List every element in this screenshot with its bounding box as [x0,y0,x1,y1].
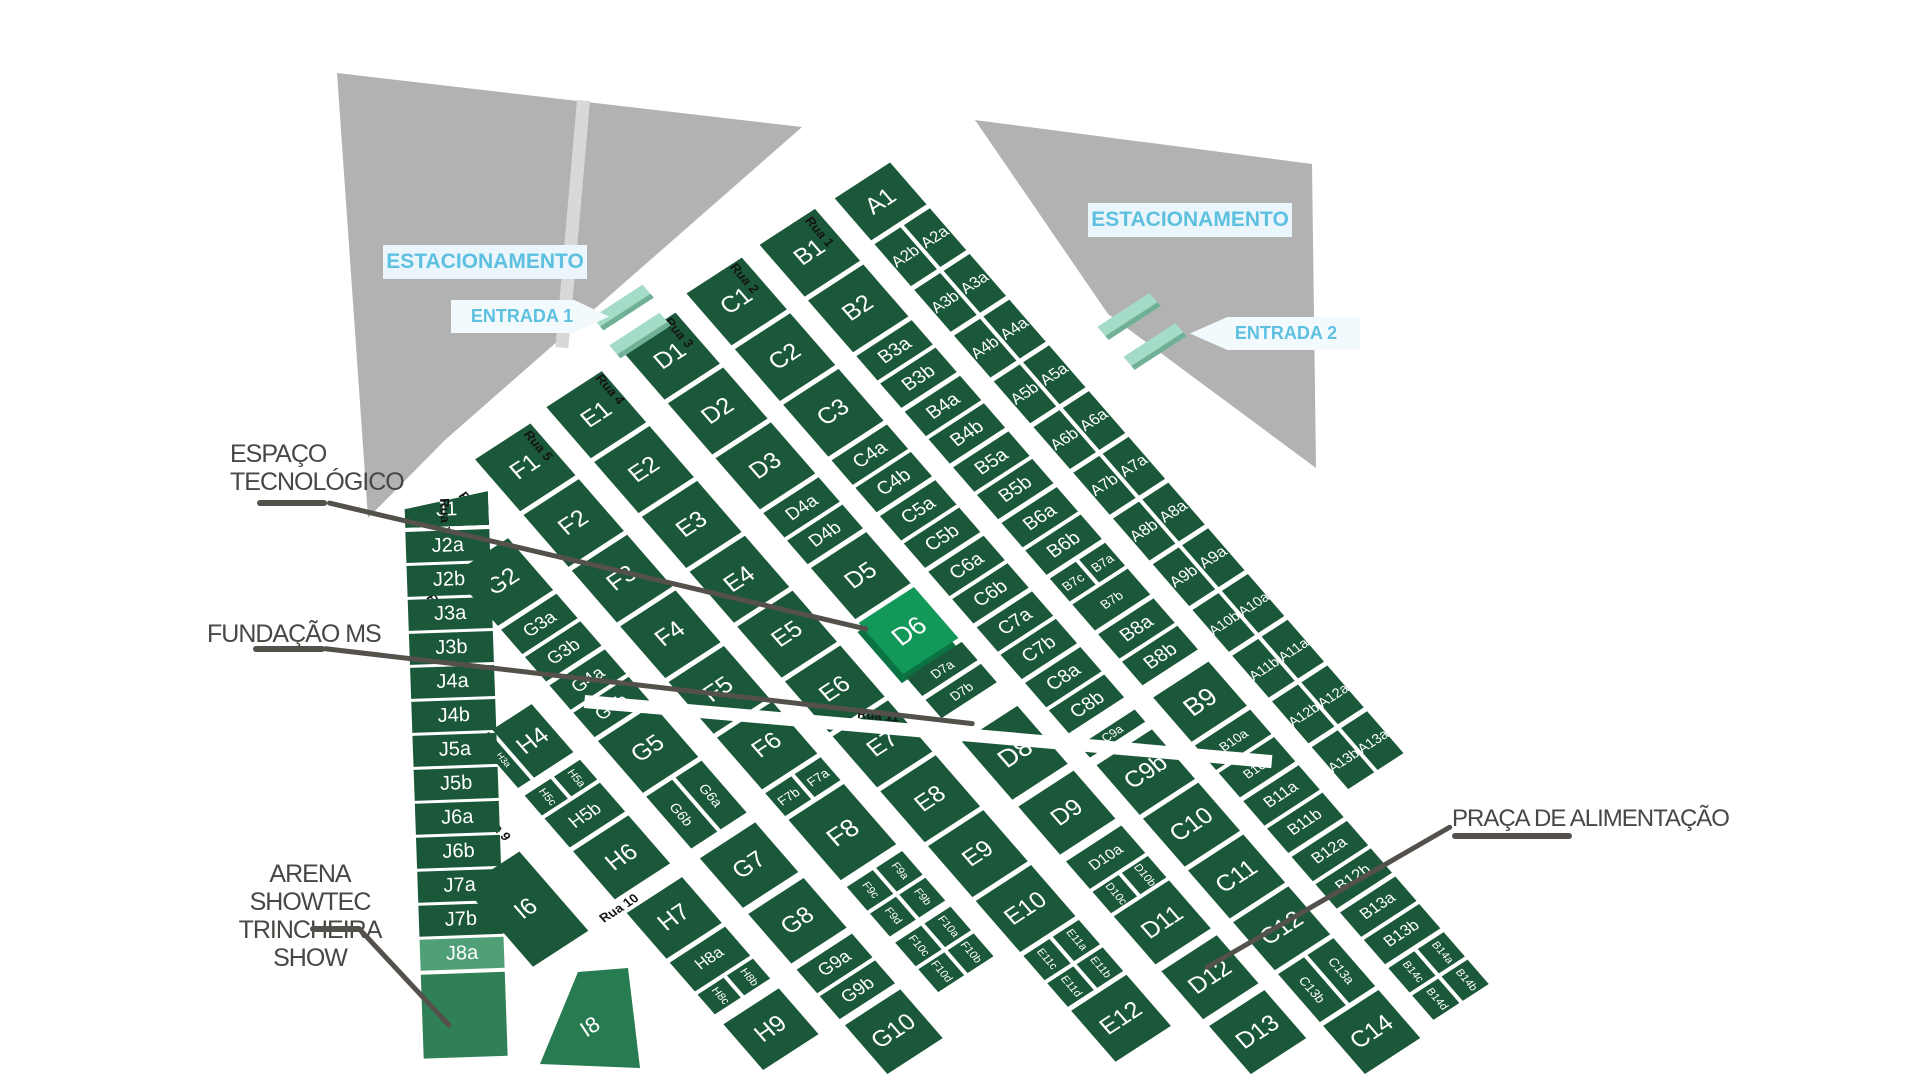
lot-label: I6 [510,895,543,924]
praca-underline [1452,833,1572,839]
lot-j6b[interactable]: J6b [416,835,501,869]
lot-label: D4a [782,491,822,523]
lot-label: D10b [1131,862,1158,888]
lot-label: E11d [1058,974,1084,999]
lot-label: G9a [814,947,854,979]
lot-label: D10a [1086,842,1126,873]
lot-label: H5a [564,767,587,788]
lot-label: B9 [1178,683,1222,720]
lot-label: H9 [750,1012,792,1047]
lot-label: C8a [1042,660,1084,693]
lot-label: F10c [906,933,931,958]
lot-label: A10a [1235,589,1272,617]
lot-label: H5b [565,799,605,831]
lot-label: B5a [971,445,1012,478]
lot-label: A9b [1167,563,1201,591]
lot-label: E4 [719,562,760,596]
lot-label: E1 [576,398,617,432]
lot-label: C4b [873,465,915,498]
lot-label: F4 [651,617,690,651]
lot-label: E6 [815,672,856,706]
lot-label: C6a [946,549,988,582]
lot-label: A8b [1127,517,1161,545]
lot-label: F9d [882,906,904,926]
lot-label: A7a [1117,452,1151,480]
lot-label: B12a [1309,835,1351,868]
lot-label: B5b [995,473,1036,506]
lot-label: A3a [958,269,992,297]
lot-label: D11 [1137,902,1188,943]
lot-label: H7 [653,900,695,935]
lot-label: A7b [1087,471,1121,499]
lot-label: B3b [898,361,939,394]
lot-label: A11a [1275,635,1311,663]
espaco-tecnologico-label: ESPAÇO TECNOLÓGICO [230,440,404,496]
lot-label: F7b [775,785,802,807]
lot-label: A2b [888,243,922,271]
praca-alimentacao-label: PRAÇA DE ALIMENTAÇÃO [1452,806,1729,833]
lot-label: E9 [958,837,999,871]
lot-j6a[interactable]: J6a [415,801,500,835]
lot-label: B2 [838,291,879,325]
lot-label: D3 [745,448,787,483]
lot-i8[interactable]: I8 [540,968,640,1068]
lot-label: D10c [1102,881,1128,907]
lot-h9[interactable]: H9 [723,988,818,1070]
lot-label: D13 [1231,1011,1284,1053]
lot-label: G8 [776,903,819,939]
showtec-event-map: A1A2bA2aA3bA3aA4bA4aA5bA5aA6bA6aA7bA7aA8… [0,0,1920,1080]
lot-label: B3a [874,334,915,367]
lot-label: D6 [886,611,931,649]
lot-j2a[interactable]: J2a [405,529,490,563]
lot-label: A4a [997,315,1031,343]
lot-label: G5 [627,731,670,767]
lot-label: B11b [1285,807,1326,839]
lot-label: F10a [935,914,961,939]
lot-label: C13a [1326,955,1357,986]
lot-label: E5 [767,617,808,651]
lot-label: D2 [697,393,739,428]
lot-label: B4a [923,390,964,423]
lot-label: C14 [1345,1011,1398,1053]
lot-label: C7b [1018,632,1060,665]
lot-label: C10 [1165,804,1218,846]
lot-label: D4b [805,518,845,550]
lot-label: B7b [1097,588,1125,611]
lot-label: C2 [764,340,806,375]
lot-j3a[interactable]: J3a [408,597,493,631]
lot-label: E2 [624,452,665,486]
lot-label: E11a [1063,928,1089,953]
lot-label: A5b [1008,380,1042,408]
lot-label: B14a [1428,940,1454,966]
lot-label: B6a [1019,501,1060,534]
lot-label: B11a [1261,779,1302,811]
lot-label: A13b [1325,745,1362,773]
lot-label: G9b [837,973,877,1005]
lot-j2b[interactable]: J2b [407,563,492,597]
lot-label: B14d [1423,986,1449,1012]
lot-label: A10b [1205,608,1242,636]
lot-label: B14c [1399,959,1425,984]
lot-label: C5b [921,521,963,554]
arena-underline [310,926,362,932]
lot-label: F6 [747,729,786,763]
lot-label: F8 [821,814,864,850]
lot-label: F10d [928,960,954,985]
lot-label: E8 [910,782,951,816]
lot-label: F9a [888,861,910,881]
lot-label: A8a [1156,498,1190,526]
lot-label: H8b [737,966,760,987]
lot-label: F2 [554,506,593,540]
lot-label: D7a [928,657,957,680]
lot-label: A6a [1077,407,1111,435]
lot-label: H8c [708,986,730,1007]
lot-label: B7a [1088,551,1116,574]
lot-label: H8a [692,945,727,973]
lot-label: E11b [1087,955,1113,980]
lot-label: G6a [696,781,725,809]
arena-showtec-block[interactable] [421,972,508,1059]
lot-label: D9 [1046,795,1088,830]
lot-label: A12a [1314,681,1351,709]
lot-label: F9c [859,880,880,900]
lot-label: C4a [849,438,891,471]
lot-label: H4 [512,723,554,758]
lot-label: E12 [1095,998,1147,1040]
estacionamento-right-label: ESTACIONAMENTO [1088,203,1292,237]
lot-label: A11b [1246,654,1282,682]
lot-label: D5 [840,558,882,593]
lot-j7a[interactable]: J7a [417,869,502,903]
lot-label: D7b [947,680,976,703]
fundacao-underline [253,646,325,652]
estacionamento-left-label: ESTACIONAMENTO [383,245,587,279]
lot-label: A2a [918,224,952,252]
lot-label: A12b [1285,700,1322,728]
lot-label: E3 [671,507,712,541]
lot-label: B10a [1216,727,1250,753]
lot-label: C11 [1211,856,1262,897]
lot-label: B13a [1357,890,1399,923]
lot-j4a[interactable]: J4a [410,665,495,699]
lot-label: B13b [1381,918,1423,951]
lot-label: F7a [804,766,831,788]
fundacao-ms-label: FUNDAÇÃO MS [207,620,381,648]
lot-label: C7a [994,605,1036,638]
lot-label: E11c [1034,947,1059,971]
lot-label: G7 [728,847,771,883]
lot-label: A9a [1196,544,1230,572]
lot-j5b[interactable]: J5b [414,767,499,801]
lot-label: A1 [860,184,901,218]
lot-label: G3a [519,608,559,640]
lot-label: C5a [897,494,939,527]
lot-label: C3 [813,395,855,430]
lot-label: A13a [1354,726,1391,754]
lot-label: B4b [946,417,987,450]
lot-label: A3b [928,289,962,317]
lot-label: A5a [1037,361,1071,389]
lot-label: C6b [970,577,1012,610]
lot-label: B14b [1452,967,1478,993]
lot-j8a[interactable]: J8a [420,937,505,971]
lot-label: G6b [667,800,696,828]
lot-label: H5c [535,787,557,808]
lot-j5a[interactable]: J5a [412,733,497,767]
lot-label: B7c [1059,571,1086,593]
lot-label: H6 [601,840,643,875]
lot-label: E10 [1000,888,1052,930]
lot-label: F10b [958,940,984,965]
lot-label: B8a [1116,612,1157,645]
lot-i8-label: I8 [575,1011,605,1043]
lot-label: G3b [543,635,583,667]
espaco-underline [257,500,327,506]
lot-label: C13b [1296,974,1327,1005]
lot-j7b[interactable]: J7b [418,903,503,937]
lot-label: B6b [1043,528,1084,561]
lot-label: F9b [911,887,933,907]
lot-label: G10 [867,1010,921,1053]
lot-label: A6b [1047,426,1081,454]
lot-j4b[interactable]: J4b [411,699,496,733]
lot-label: A4b [968,334,1002,362]
